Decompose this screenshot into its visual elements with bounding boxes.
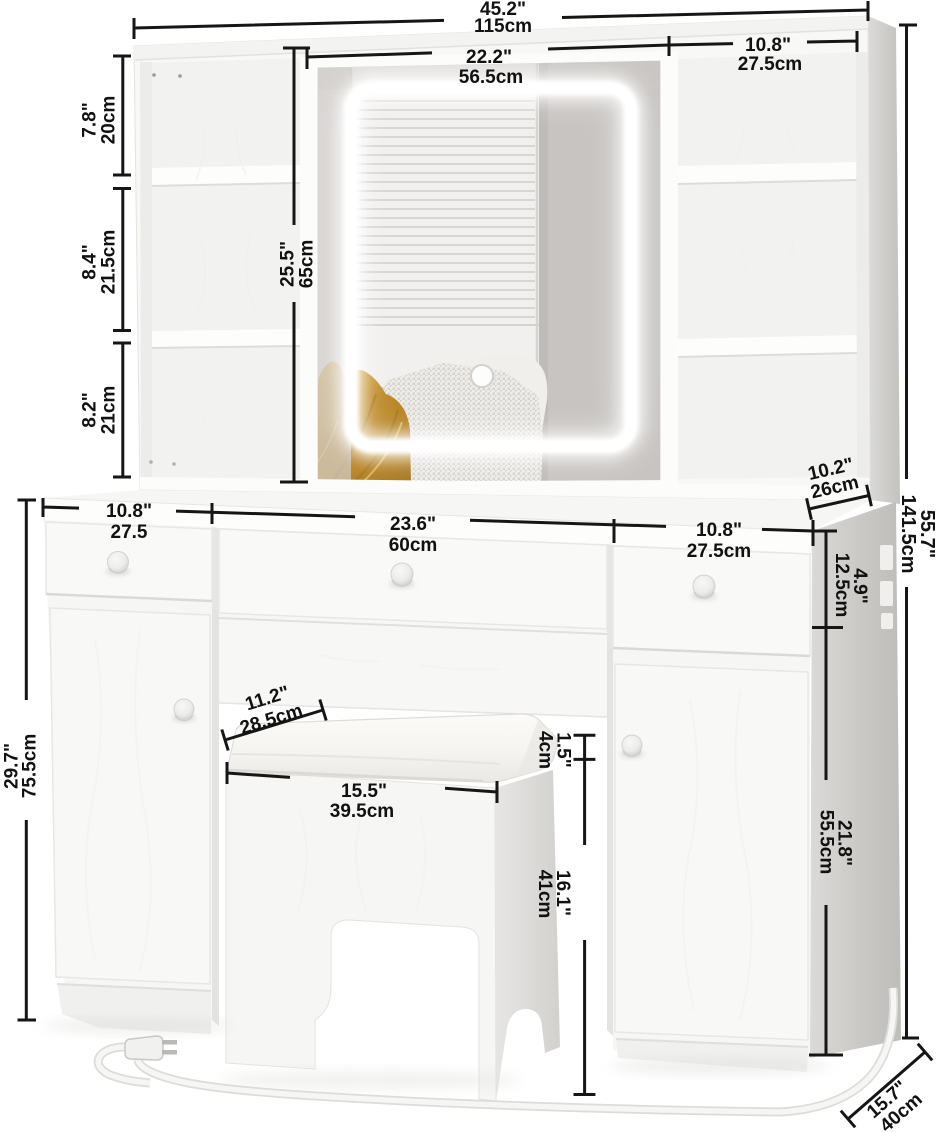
svg-text:10.8": 10.8" (745, 35, 791, 56)
svg-text:27.5cm: 27.5cm (738, 54, 802, 75)
svg-text:8.4": 8.4" (80, 244, 101, 279)
svg-text:4cm: 4cm (535, 731, 556, 769)
svg-text:27.5: 27.5 (111, 522, 148, 543)
svg-text:39.5cm: 39.5cm (330, 801, 394, 822)
svg-text:41cm: 41cm (534, 870, 555, 919)
svg-text:23.6": 23.6" (390, 514, 436, 535)
svg-text:75.5cm: 75.5cm (20, 734, 41, 798)
svg-text:20cm: 20cm (99, 96, 120, 145)
svg-text:22.2": 22.2" (466, 47, 512, 68)
svg-text:141.5cm: 141.5cm (897, 495, 919, 574)
svg-text:27.5cm: 27.5cm (687, 541, 751, 562)
svg-text:25.5": 25.5" (278, 241, 299, 287)
svg-text:12.5cm: 12.5cm (831, 553, 852, 617)
svg-text:10.8": 10.8" (696, 520, 742, 541)
svg-text:15.5": 15.5" (341, 781, 387, 802)
svg-text:21.5cm: 21.5cm (99, 230, 120, 294)
svg-text:10.8": 10.8" (106, 501, 152, 522)
svg-text:65cm: 65cm (297, 240, 318, 289)
svg-text:7.8": 7.8" (80, 102, 101, 137)
svg-text:56.5cm: 56.5cm (459, 67, 523, 88)
svg-text:60cm: 60cm (389, 535, 438, 556)
svg-text:115cm: 115cm (474, 16, 532, 37)
svg-text:8.2": 8.2" (80, 392, 101, 427)
svg-text:55.5cm: 55.5cm (816, 810, 837, 874)
svg-text:21cm: 21cm (99, 386, 120, 435)
